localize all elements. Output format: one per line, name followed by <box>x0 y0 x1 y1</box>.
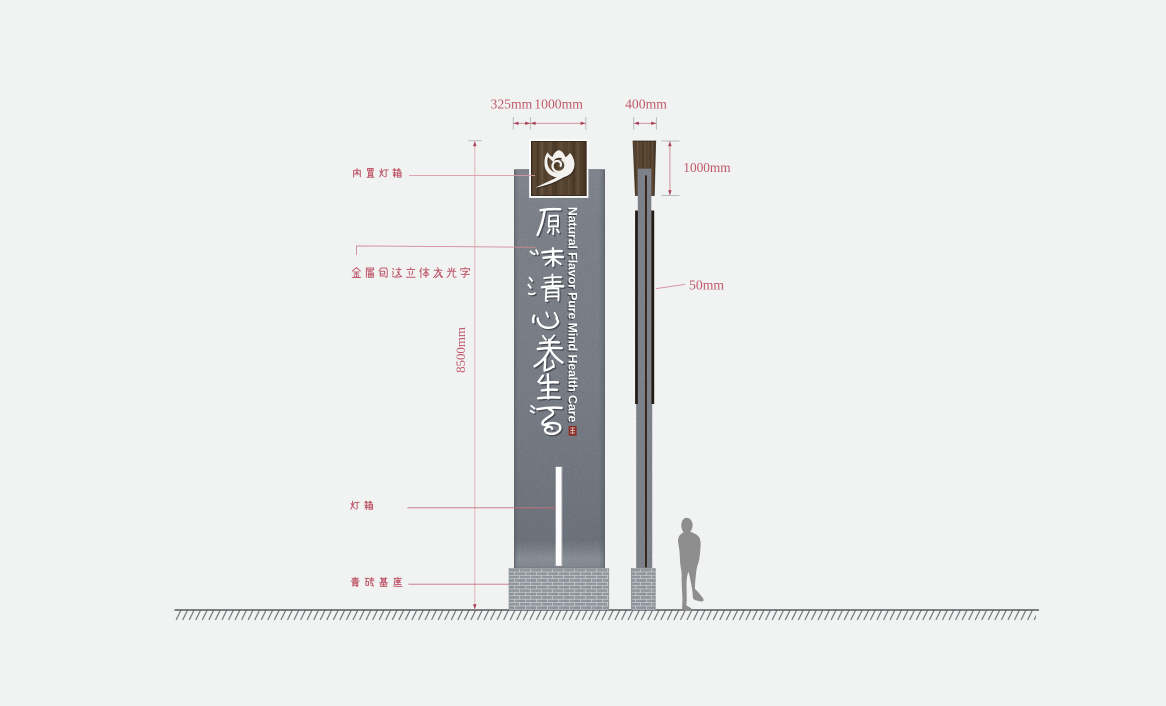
svg-text:Natural Flavor Pure Mind Healt: Natural Flavor Pure Mind Health Care <box>566 207 580 423</box>
svg-text:1000mm: 1000mm <box>683 160 731 175</box>
svg-text:325mm: 325mm <box>490 96 532 111</box>
svg-text:8500mm: 8500mm <box>454 327 468 373</box>
svg-text:400mm: 400mm <box>625 96 667 111</box>
svg-text:50mm: 50mm <box>689 278 724 293</box>
svg-text:1000mm: 1000mm <box>534 96 583 111</box>
